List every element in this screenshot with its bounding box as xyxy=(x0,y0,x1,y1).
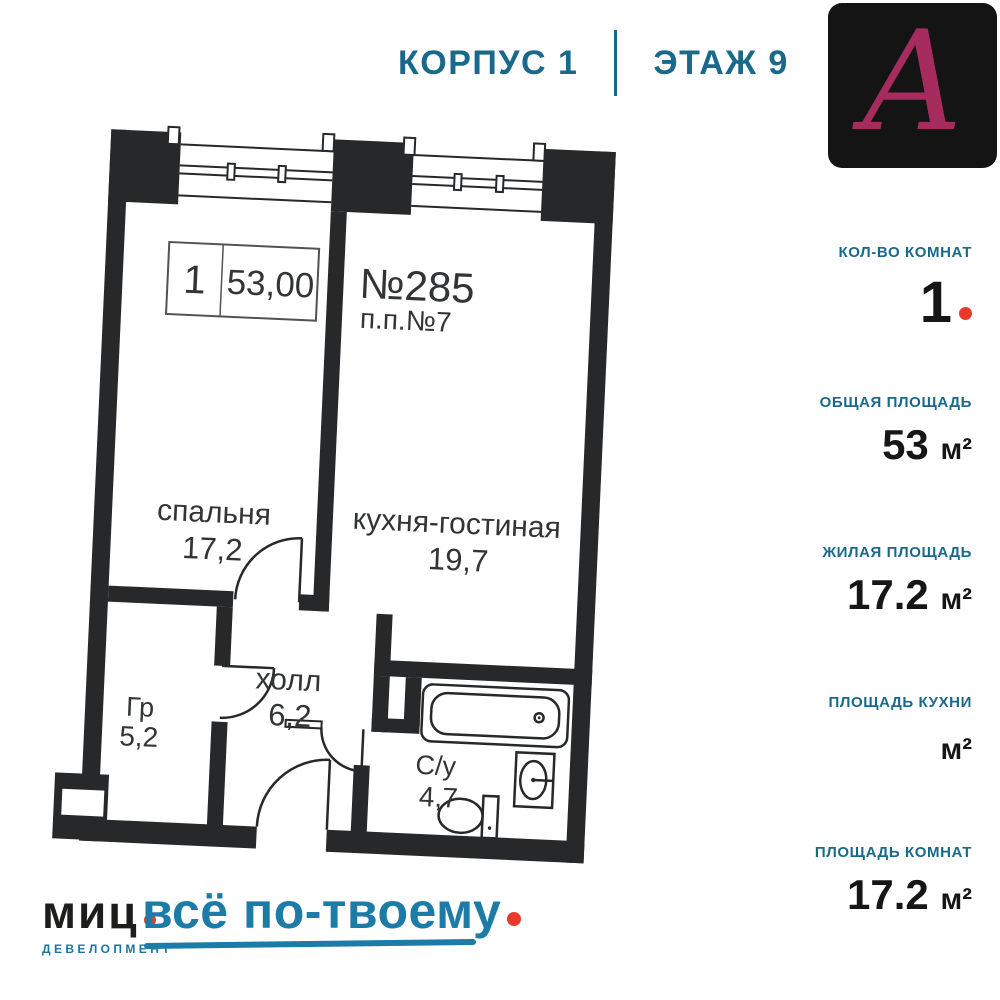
room-label-bedroom: спальня xyxy=(156,494,271,532)
bedroom-door-leaf xyxy=(299,538,302,602)
sink-icon xyxy=(514,752,554,808)
stat-value: 17.2 м² xyxy=(712,874,972,916)
entrance-door-arc xyxy=(257,757,330,830)
stat-living-area: ЖИЛАЯ ПЛОЩАДЬ 17.2 м² xyxy=(712,544,972,616)
stat-label: ЖИЛАЯ ПЛОЩАДЬ xyxy=(712,544,972,561)
slogan-text: всё по-твоему xyxy=(142,886,521,936)
stat-value: м² xyxy=(712,724,972,766)
stat-rooms-count: КОЛ-ВО КОМНАТ 1 xyxy=(712,244,972,332)
header-divider xyxy=(614,30,617,96)
logo-letter-icon: А xyxy=(860,13,965,151)
floor-plan: 1 53,00 №285 п.п.№7 спальня 17,2 кухня-г… xyxy=(20,95,660,885)
slogan: всё по-твоему xyxy=(142,886,521,947)
bathtub-icon xyxy=(421,684,569,748)
stat-kitchen-area: ПЛОЩАДЬ КУХНИ м² xyxy=(712,694,972,766)
stat-label: ОБЩАЯ ПЛОЩАДЬ xyxy=(712,394,972,411)
building-label: КОРПУС 1 xyxy=(398,44,578,83)
stat-label: ПЛОЩАДЬ КОМНАТ xyxy=(712,844,972,861)
room-area-bedroom: 17,2 xyxy=(181,530,243,568)
stat-label: ПЛОЩАДЬ КУХНИ xyxy=(712,694,972,711)
info-box-area: 53,00 xyxy=(226,263,315,306)
stat-value: 17.2 м² xyxy=(712,574,972,616)
info-box-rooms: 1 xyxy=(182,258,206,303)
room-area-hall: 6,2 xyxy=(268,697,313,734)
info-box: 1 53,00 xyxy=(166,242,319,321)
stat-value: 53 м² xyxy=(712,424,972,466)
bathroom-door-arc xyxy=(320,727,364,771)
room-label-kitchen: кухня-гостиная xyxy=(352,503,562,545)
room-label-bathroom: С/у xyxy=(415,750,457,782)
entrance-door-leaf xyxy=(327,760,330,830)
room-area-wardrobe: 5,2 xyxy=(119,720,159,753)
header: КОРПУС 1 ЭТАЖ 9 xyxy=(398,30,789,96)
slogan-underline xyxy=(144,939,476,949)
developer-logo: А xyxy=(828,3,997,168)
bathroom-door-leaf xyxy=(361,729,363,771)
room-label-wardrobe: Гр xyxy=(125,692,154,723)
room-area-bathroom: 4,7 xyxy=(418,781,458,814)
room-label-hall: холл xyxy=(255,662,322,698)
floor-label: ЭТАЖ 9 xyxy=(653,44,788,83)
stat-label: КОЛ-ВО КОМНАТ xyxy=(712,244,972,261)
stat-total-area: ОБЩАЯ ПЛОЩАДЬ 53 м² xyxy=(712,394,972,466)
stat-value: 1 xyxy=(712,274,972,332)
bedroom-door-arc xyxy=(235,535,302,602)
apartment-pp-number: п.п.№7 xyxy=(359,303,452,338)
wall-niche xyxy=(61,789,104,817)
accent-dot xyxy=(959,307,972,320)
stat-rooms-area: ПЛОЩАДЬ КОМНАТ 17.2 м² xyxy=(712,844,972,916)
room-area-kitchen: 19,7 xyxy=(427,541,489,579)
accent-dot xyxy=(507,912,521,926)
